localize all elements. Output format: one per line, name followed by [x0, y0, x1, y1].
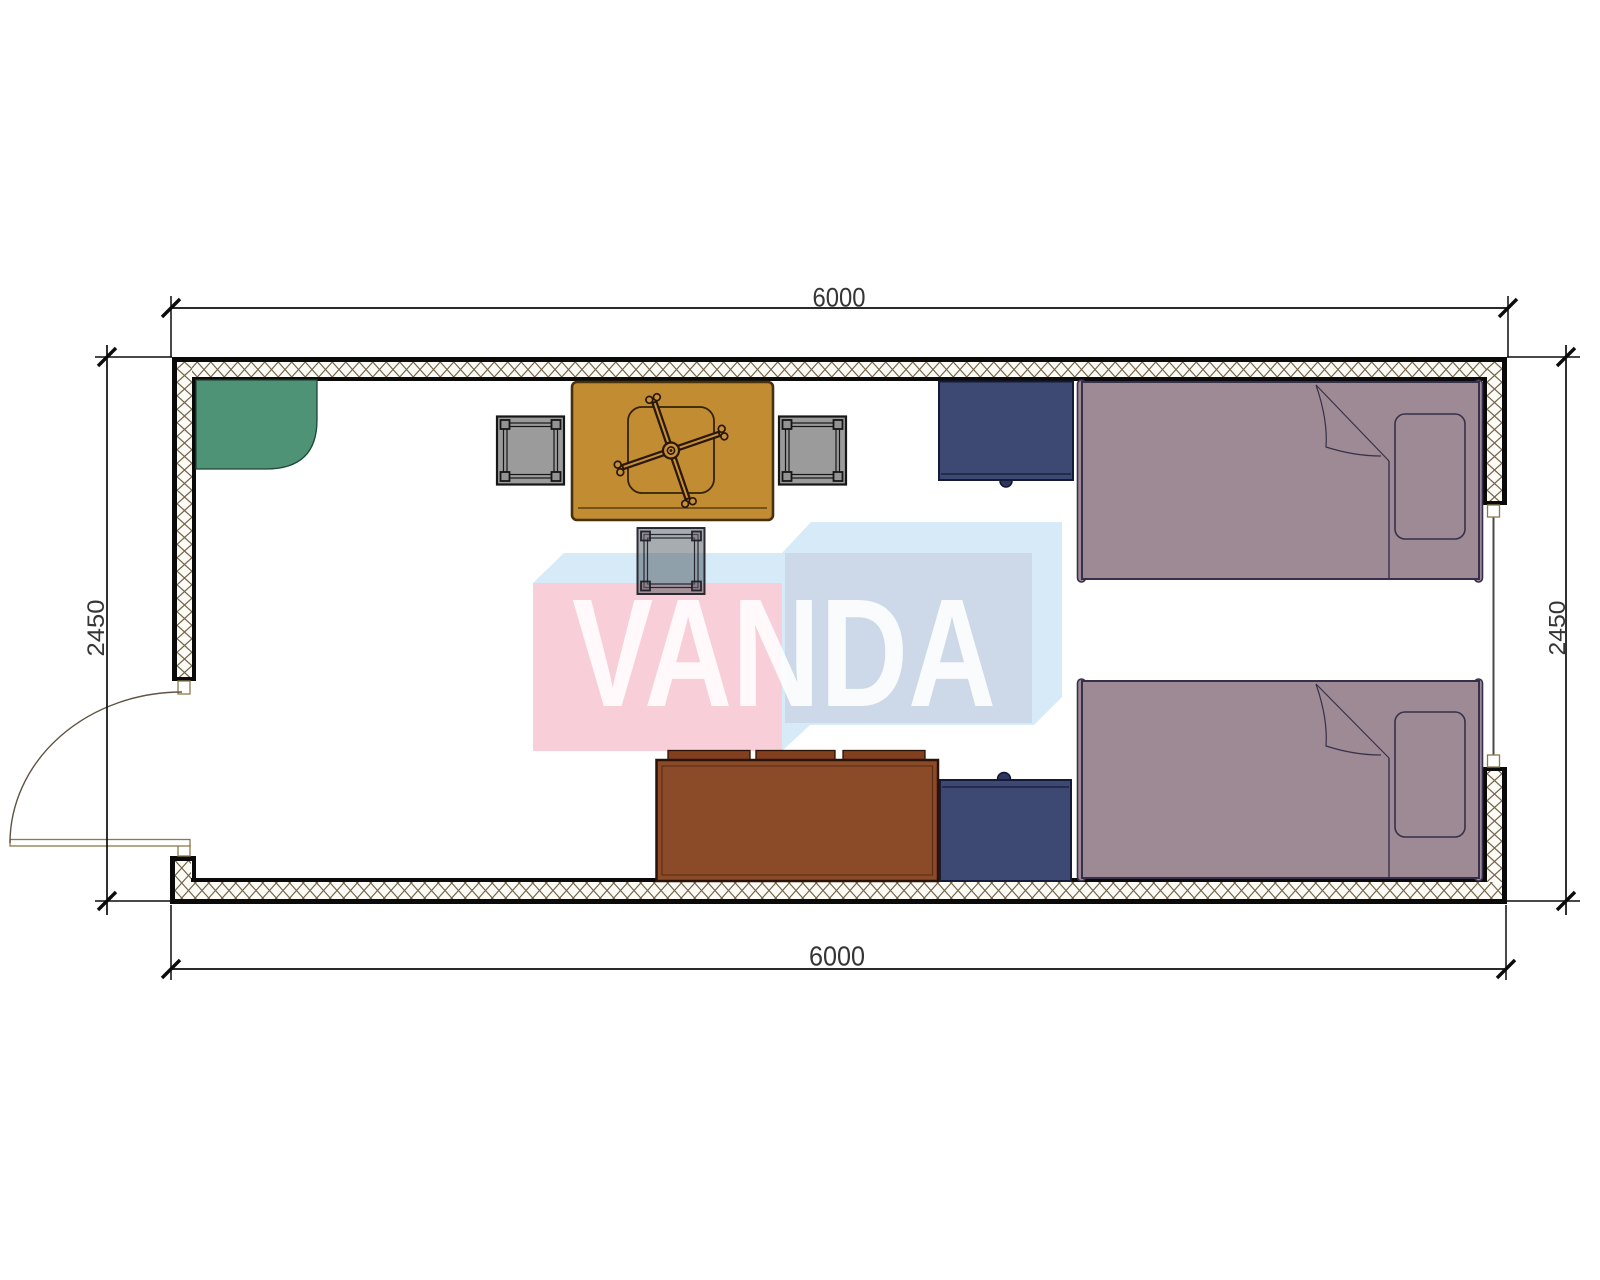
svg-text:6000: 6000	[813, 283, 866, 313]
svg-text:VANDA: VANDA	[572, 567, 996, 739]
svg-text:6000: 6000	[809, 941, 865, 972]
svg-text:2450: 2450	[83, 600, 110, 657]
svg-text:2450: 2450	[1544, 601, 1570, 656]
